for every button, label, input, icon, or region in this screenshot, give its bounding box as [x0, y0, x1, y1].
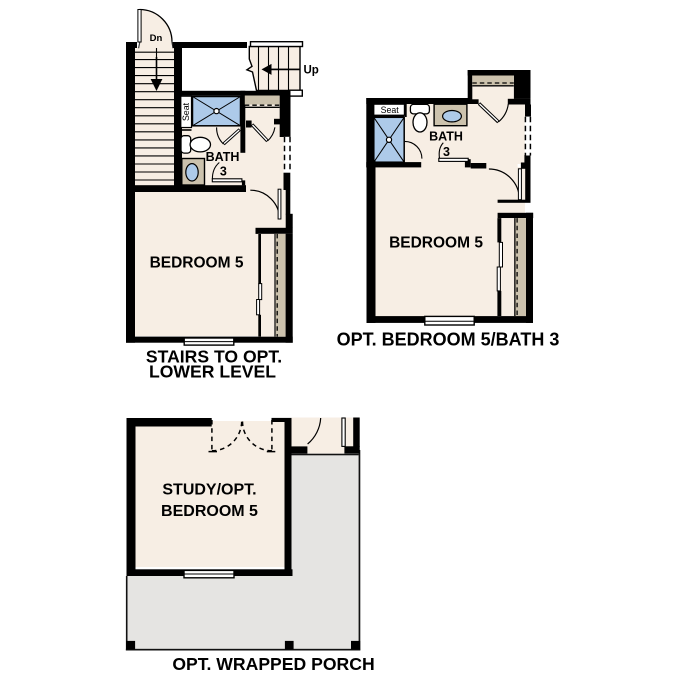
svg-text:3: 3: [443, 145, 450, 159]
svg-text:BEDROOM 5: BEDROOM 5: [161, 503, 258, 520]
svg-text:Dn: Dn: [150, 33, 163, 44]
svg-text:OPT. WRAPPED PORCH: OPT. WRAPPED PORCH: [172, 654, 374, 674]
svg-text:3: 3: [220, 165, 227, 179]
svg-text:LOWER LEVEL: LOWER LEVEL: [149, 362, 276, 382]
svg-text:BATH: BATH: [206, 150, 240, 164]
svg-text:BATH: BATH: [429, 129, 463, 143]
svg-text:Up: Up: [304, 64, 319, 76]
svg-text:Seat: Seat: [381, 105, 400, 115]
svg-text:OPT. BEDROOM 5/BATH 3: OPT. BEDROOM 5/BATH 3: [337, 330, 560, 350]
svg-text:STUDY/OPT.: STUDY/OPT.: [162, 482, 256, 499]
svg-text:Seat: Seat: [181, 102, 191, 121]
svg-text:BEDROOM 5: BEDROOM 5: [150, 255, 244, 272]
svg-text:BEDROOM 5: BEDROOM 5: [389, 234, 483, 251]
